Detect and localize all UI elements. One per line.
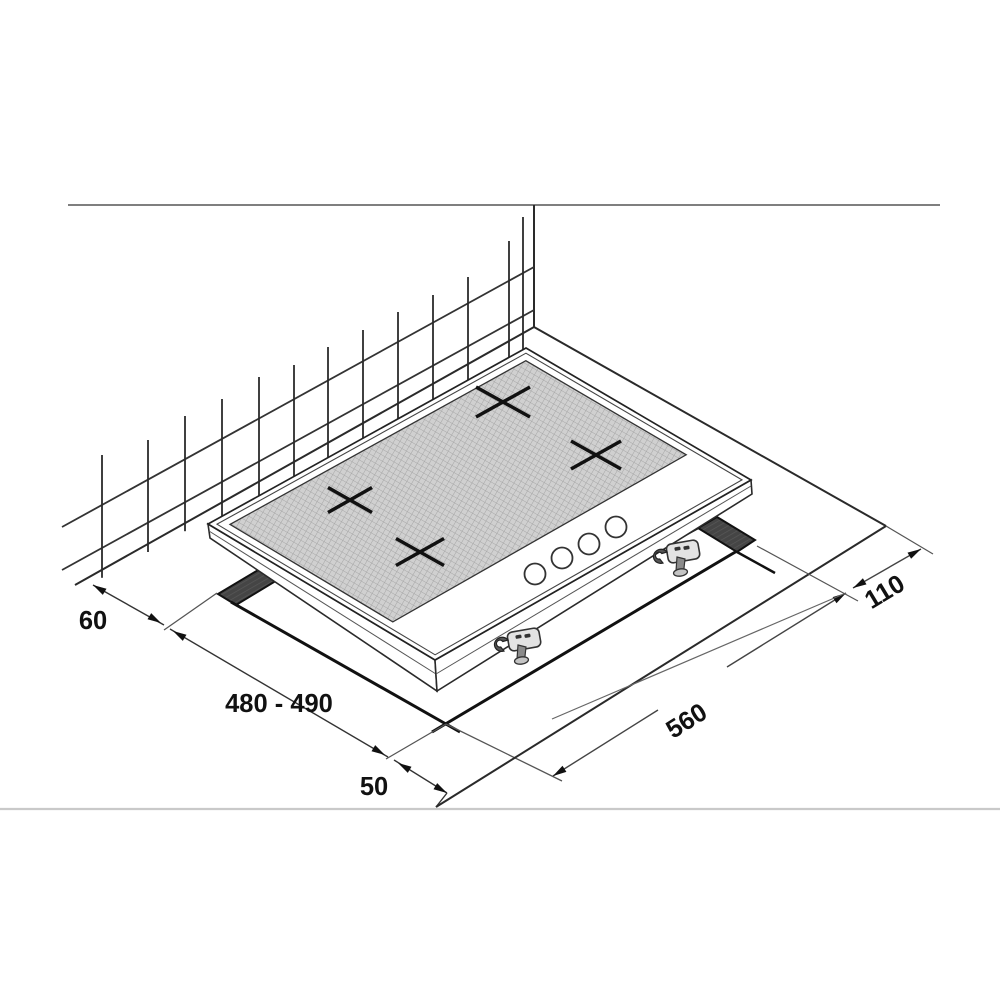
svg-text:60: 60 <box>79 607 107 635</box>
svg-text:50: 50 <box>360 773 388 801</box>
svg-text:480 - 490: 480 - 490 <box>225 690 333 718</box>
